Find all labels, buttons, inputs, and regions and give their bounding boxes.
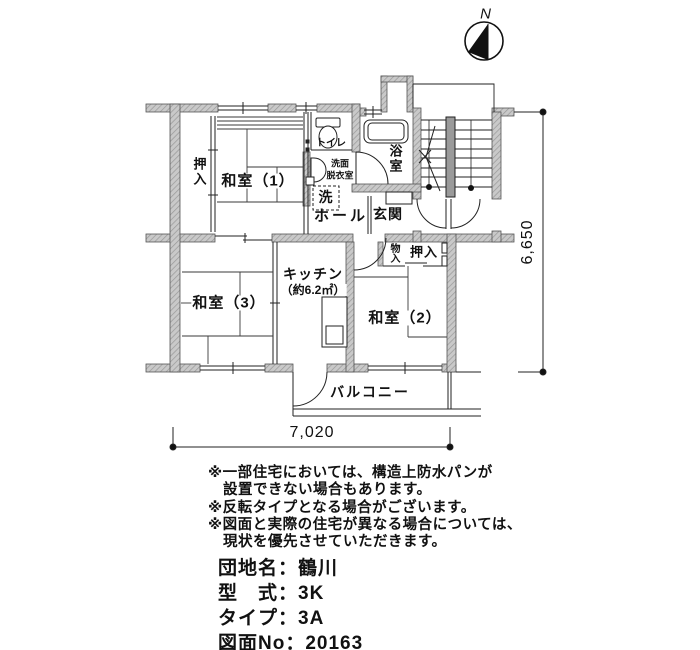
room-label-balcony: バルコニー [329,385,411,399]
balcony-door [293,372,327,406]
stair-rail [446,117,455,197]
room-label-senmen-2: 脱衣室 [325,172,354,181]
room-label-kitchen-area: （約6.2㎡） [280,284,347,296]
floorplan-page: 押入 和室（1） トイレ 洗面 脱衣室 洗 ホール 玄関 浴室 物入 押入 キッ… [0,0,700,650]
property-info-block: 団地名：鶴川 型 式：3K タイプ：3A 図面No：20163 [218,556,363,650]
dimension-height: 6,650 [520,218,536,265]
north-arrow-icon [465,22,503,60]
room-label-washitsu1: 和室（1） [220,174,295,189]
stairwell [413,84,494,197]
room-label-washitsu2: 和室（2） [367,311,442,326]
room-label-oshiire-left: 押入 [193,155,206,189]
room-label-genkan: 玄関 [372,207,404,221]
note-line: ※図面と実際の住宅が異なる場合については、 [208,517,522,534]
room-label-laundry: 洗 [318,190,335,204]
entry-door-left [417,199,446,229]
note-line: ※反転タイプとなる場合がございます。 [208,500,522,517]
note-line: ※一部住宅においては、構造上防水パンが [208,465,522,482]
north-label: N [479,7,493,22]
room-label-senmen-1: 洗面 [330,160,350,169]
room-label-bath: 浴室 [389,142,402,176]
floor-plan-drawing [0,0,700,650]
stair-flow-line [426,126,440,191]
property-katashiki: 型 式：3K [218,581,363,606]
room-label-toilet: トイレ [315,139,347,149]
note-line: 設置できない場合もあります。 [208,482,522,499]
property-drawing-no: 図面No：20163 [218,631,363,650]
kitchen-sink [326,326,343,344]
room-label-washitsu3: 和室（3） [191,296,266,311]
property-type: タイプ：3A [218,606,363,631]
bath-door [356,152,388,184]
property-danchi-name: 団地名：鶴川 [218,556,363,581]
notes-block: ※一部住宅においては、構造上防水パンが 設置できない場合もあります。 ※反転タイ… [208,465,522,551]
note-line: 現状を優先させていただきます。 [208,534,522,551]
entry-door-right [451,199,480,229]
room-label-kitchen: キッチン [282,267,344,281]
room-label-oshiire-right: 押入 [409,246,439,259]
shoe-cabinet [386,192,412,204]
room-label-hall: ホール [313,209,369,224]
room-label-monoire: 物入 [388,241,398,265]
dimension-width: 7,020 [288,425,335,441]
